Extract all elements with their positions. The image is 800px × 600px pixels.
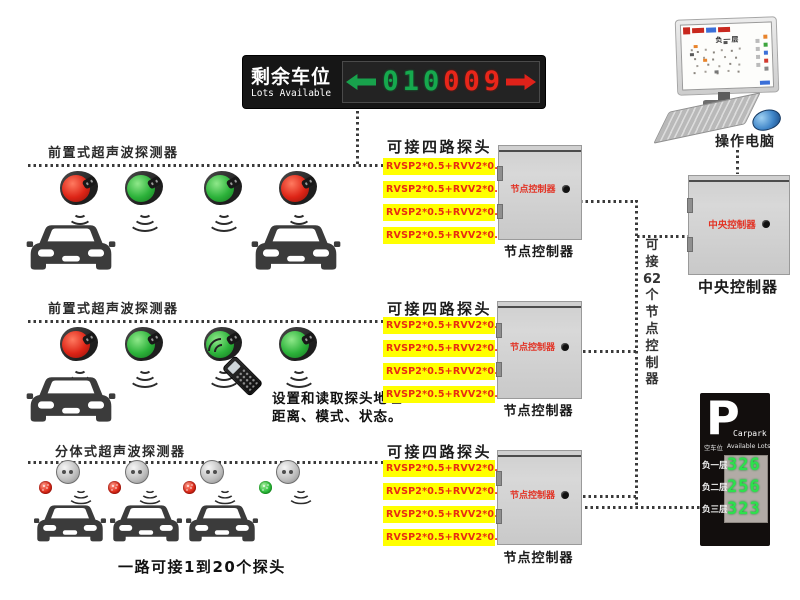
wire-node1-to-trunk: [580, 200, 637, 203]
mouse: [750, 106, 784, 134]
probe-wiring-label: RVSP2*0.5+RVV2*0.5:1: [383, 317, 495, 334]
split-ultrasonic-detector: [125, 460, 149, 484]
bottom-note: 一路可接1到20个探头: [118, 556, 286, 577]
floor-count: 323: [727, 499, 765, 519]
probe-section3-title: 可接四路探头: [387, 441, 492, 462]
car-icon: [26, 374, 116, 424]
cabinet-face-label: 节点控制器: [498, 340, 581, 353]
floorplan-accents: [694, 45, 698, 48]
titlebar-chip: [692, 28, 704, 33]
node-controller-cabinet-2: 节点控制器: [497, 301, 582, 399]
cabinet-hinge: [496, 362, 502, 377]
ultrasonic-waves-icon: [126, 208, 164, 230]
ultrasonic-detector: [279, 171, 317, 205]
wire-row2-bus: [28, 320, 384, 323]
ultrasonic-detector: [125, 327, 163, 361]
cabinet-top-line: [498, 455, 581, 457]
probe-section2-title: 可接四路探头: [387, 298, 492, 319]
wire-node2-to-trunk: [583, 350, 637, 353]
remote-note-line2: 距离、模式、状态。: [272, 409, 403, 427]
node-controller-caption: 节点控制器: [498, 241, 580, 260]
cabinet-hinge: [496, 509, 502, 524]
probe-wiring-label: RVSP2*0.5+RVV2*0.5:1: [383, 460, 495, 477]
probe-wiring-label: RVSP2*0.5+RVV2*0.5:2: [383, 340, 495, 357]
node-controller-cabinet-1: 节点控制器: [498, 145, 582, 240]
parking-brand: Carpark: [733, 429, 767, 438]
display-digit-panel: 0 1 0 0 0 9: [342, 61, 540, 103]
titlebar-chip: [718, 27, 730, 32]
cabinet-top-line: [499, 150, 581, 152]
display-title-block: 剩余车位 Lots Available: [243, 66, 342, 99]
split-ultrasonic-detector: [276, 460, 300, 484]
cabinet-hinge: [496, 323, 502, 338]
cabinet-hinge: [687, 237, 693, 252]
status-lamp: [183, 481, 196, 494]
detector-disc: [125, 460, 149, 484]
led-digit: 0: [381, 63, 399, 101]
parking-subtitle-en: Available Lots: [727, 443, 771, 452]
floor-label: 负二层: [702, 481, 724, 493]
floor-label: 负一层: [702, 459, 724, 471]
cabinet-hinge: [687, 198, 693, 213]
screen-floor-title: 负一层: [715, 35, 739, 46]
led-digit: 0: [442, 63, 460, 101]
central-controller-caption: 中央控制器: [688, 276, 788, 297]
status-lamp: [108, 481, 121, 494]
wire-to-parking-sign: [585, 506, 700, 509]
parking-sign: P Carpark 空车位 Available Lots 负一层 326 负二层…: [700, 393, 770, 546]
monitor-screen: 负一层: [680, 21, 774, 90]
node-controller-face-text: 节点控制器: [510, 182, 555, 195]
probe-wiring-label: RVSP2*0.5+RVV2*0.5:4: [383, 227, 495, 244]
cabinet-hinge: [496, 471, 502, 486]
car-icon: [110, 500, 182, 546]
indicator-dot: [561, 343, 569, 351]
cabinet-top-line: [689, 180, 789, 182]
display-title-cn: 剩余车位: [251, 66, 342, 88]
led-digit: 1: [402, 63, 420, 101]
probe-wiring-label: RVSP2*0.5+RVV2*0.5:3: [383, 506, 495, 523]
probe-section1-title: 可接四路探头: [387, 136, 492, 157]
parking-subtitle-cn: 空车位: [704, 443, 723, 452]
probe-wiring-label: RVSP2*0.5+RVV2*0.5:2: [383, 181, 495, 198]
floor-count: 326: [727, 455, 765, 475]
wire-row1-bus: [28, 164, 384, 167]
car-icon: [251, 222, 341, 272]
node-controller-face-text: 节点控制器: [510, 488, 555, 501]
app-logo: [683, 27, 690, 34]
wire-computer-to-central: [736, 150, 739, 174]
led-digit: 0: [462, 63, 480, 101]
status-lamp: [259, 481, 272, 494]
operator-computer-label: 操作电脑: [700, 131, 790, 151]
ultrasonic-detector: [204, 171, 242, 205]
led-digit: 0: [422, 63, 440, 101]
wire-display-to-row1: [356, 111, 359, 166]
right-arrow-icon: [506, 73, 536, 91]
row2-label: 前置式超声波探测器: [48, 298, 179, 317]
split-ultrasonic-detector: [56, 460, 80, 484]
row3-label: 分体式超声波探测器: [55, 441, 186, 460]
ultrasonic-detector: [60, 327, 98, 361]
titlebar-chip: [706, 27, 716, 32]
ultrasonic-waves-icon: [286, 485, 316, 503]
ultrasonic-detector: [60, 171, 98, 205]
cabinet-face-label: 中央控制器: [689, 217, 789, 231]
wire-trunk: [635, 200, 638, 508]
node-controller-cabinet-3: 节点控制器: [497, 450, 582, 545]
floorplan-markers: [691, 49, 693, 51]
remote-keypad: [234, 368, 258, 392]
car-icon: [34, 500, 106, 546]
probe-wiring-label: RVSP2*0.5+RVV2*0.5:3: [383, 204, 495, 221]
probe-wiring-label: RVSP2*0.5+RVV2*0.5:4: [383, 386, 495, 403]
probe-wiring-label: RVSP2*0.5+RVV2*0.5:3: [383, 363, 495, 380]
cabinet-face-label: 节点控制器: [499, 182, 581, 195]
parking-guidance-system-diagram: 剩余车位 Lots Available 0 1 0 0 0 9: [0, 0, 800, 600]
probe-wiring-label: RVSP2*0.5+RVV2*0.5:2: [383, 483, 495, 500]
lots-available-display: 剩余车位 Lots Available 0 1 0 0 0 9: [243, 56, 545, 108]
node-controller-face-text: 节点控制器: [510, 340, 555, 353]
central-controller-face-text: 中央控制器: [708, 217, 756, 231]
ultrasonic-detector: [279, 327, 317, 361]
wire-node3-to-trunk: [583, 495, 637, 498]
probe-wiring-label: RVSP2*0.5+RVV2*0.5:1: [383, 158, 495, 175]
car-icon: [186, 500, 258, 546]
detector-disc: [200, 460, 224, 484]
cabinet-hinge: [497, 204, 503, 219]
led-digit: 9: [483, 63, 501, 101]
node-controller-caption: 节点控制器: [497, 400, 580, 419]
ultrasonic-waves-icon: [205, 208, 243, 230]
ultrasonic-detector: [125, 171, 163, 205]
car-icon: [26, 222, 116, 272]
left-arrow-icon: [346, 73, 376, 91]
split-ultrasonic-detector: [200, 460, 224, 484]
cabinet-hinge: [497, 166, 503, 181]
indicator-dot: [762, 220, 770, 228]
ultrasonic-waves-icon: [126, 364, 164, 386]
legend-swatches: [763, 35, 767, 39]
cabinet-face-label: 节点控制器: [498, 488, 581, 501]
probe-wiring-label: RVSP2*0.5+RVV2*0.5:4: [383, 529, 495, 546]
cabinet-top-line: [498, 306, 581, 308]
detector-disc: [56, 460, 80, 484]
floor-count: 256: [727, 477, 765, 497]
ultrasonic-waves-icon: [280, 364, 318, 386]
node-controller-caption: 节点控制器: [497, 547, 580, 566]
indicator-dot: [562, 185, 570, 193]
trunk-capacity-note: 可 接 62 个 节 点 控 制 器: [641, 238, 663, 389]
monitor: 负一层: [675, 16, 780, 96]
status-lamp: [39, 481, 52, 494]
row1-label: 前置式超声波探测器: [48, 142, 179, 161]
central-controller-cabinet: 中央控制器: [688, 175, 790, 275]
statusbar-chip: [760, 81, 770, 85]
parking-subtitle: 空车位 Available Lots: [704, 443, 768, 452]
indicator-dot: [561, 491, 569, 499]
floor-label: 负三层: [702, 503, 724, 515]
detector-disc: [276, 460, 300, 484]
display-title-en: Lots Available: [251, 88, 342, 99]
